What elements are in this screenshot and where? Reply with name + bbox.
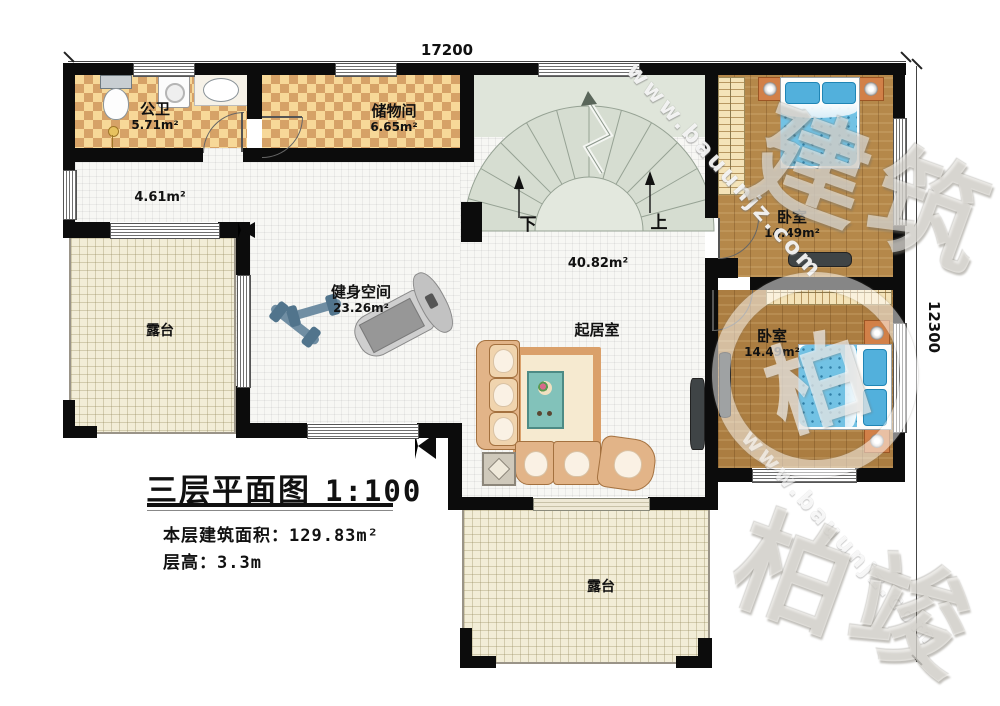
floor-area-row: 本层建筑面积：129.83m² (163, 521, 379, 546)
dimension-line-right (916, 66, 917, 662)
door-leaf (241, 112, 243, 152)
wall (247, 63, 262, 119)
window (893, 323, 907, 433)
floor-plan: 公卫 5.71m² 储物间 6.65m² 4.61m² 40.82m² 健身空间… (0, 0, 1000, 706)
wall (63, 222, 110, 238)
window (133, 63, 195, 77)
room-label-main-hall: 40.82m² (568, 256, 628, 272)
window (335, 63, 397, 77)
room-name: 健身空间 (331, 284, 391, 301)
wall (750, 277, 905, 290)
wall (461, 202, 482, 242)
room-label-terrace-left: 露台 (146, 324, 174, 339)
dimension-tick (911, 58, 922, 69)
toilet-bowl-icon (103, 88, 129, 120)
nightstand-icon (864, 428, 890, 453)
cup-icon (547, 411, 552, 416)
wall (705, 63, 718, 218)
window (307, 424, 419, 439)
door-leaf (262, 116, 302, 118)
bed-pillow (863, 349, 887, 386)
tv-living-icon (690, 378, 705, 450)
flower-decor-icon (538, 381, 552, 395)
sofa-pillow (612, 448, 644, 480)
wall-junction-marker (238, 222, 255, 238)
sofa-pillow (493, 383, 514, 407)
wall (705, 258, 738, 278)
room-label-bedroom-bottom: 卧室 14.49m² (744, 328, 800, 360)
wardrobe-icon (718, 77, 745, 195)
bed-pillow (863, 389, 887, 426)
room-label-fitness: 健身空间 23.26m² (331, 284, 391, 316)
room-name: 卧室 (744, 328, 800, 345)
door-leaf (712, 290, 714, 330)
dimension-top-value: 17200 (421, 41, 473, 59)
dimension-right-value: 12300 (925, 301, 943, 353)
room-area: 5.71m² (131, 118, 178, 133)
room-name: 卧室 (764, 209, 820, 226)
sliding-door (533, 498, 650, 511)
window (893, 118, 907, 226)
wall (63, 148, 203, 162)
room-area: 14.49m² (764, 226, 820, 241)
bed-pillow (822, 82, 856, 104)
watermark-brand: 柏竣 (713, 468, 1000, 706)
bed-icon (798, 344, 892, 430)
window (237, 275, 251, 388)
nightstand-icon (858, 77, 884, 101)
room-name: 储物间 (370, 103, 417, 120)
window (110, 223, 220, 239)
window (752, 469, 857, 483)
room-area: 23.26m² (331, 301, 391, 316)
floor-height-row: 层高：3.3m (163, 548, 262, 573)
cup-icon (537, 411, 542, 416)
tv-bedroom-bottom-icon (719, 352, 731, 418)
dimension-line-top (68, 61, 906, 62)
room-name: 露台 (146, 324, 174, 339)
room-area: 40.82m² (568, 256, 628, 272)
sofa-left (476, 340, 520, 450)
room-label-bathroom: 公卫 5.71m² (131, 101, 178, 133)
wall (448, 497, 533, 510)
sofa-pillow (493, 417, 514, 441)
sofa-pillow (524, 451, 548, 477)
sofa-bottom (553, 441, 601, 485)
side-table (482, 452, 516, 486)
bed-pillow (785, 82, 820, 104)
nightstand-icon (758, 77, 782, 101)
sofa-pillow (493, 349, 514, 373)
sofa-pillow (564, 451, 590, 477)
room-name: 公卫 (131, 101, 178, 118)
dimension-tick (911, 654, 922, 665)
door-leaf (718, 218, 720, 258)
room-area: 14.49m² (744, 345, 800, 360)
spiral-staircase (460, 73, 718, 237)
terrace-corner-block (460, 656, 496, 668)
stairs-down-label: 下 (520, 210, 537, 235)
bed-icon (780, 77, 860, 169)
terrace-corner-block (63, 426, 97, 438)
wall (236, 423, 307, 438)
room-label-bedroom-top: 卧室 14.49m² (764, 209, 820, 241)
side-table-inlay (488, 458, 511, 481)
sink-icon (203, 78, 239, 102)
tv-bedroom-top-icon (788, 252, 852, 267)
window (63, 170, 77, 220)
room-name: 起居室 (574, 322, 619, 339)
floor-height-label: 层高： (163, 553, 217, 573)
room-area: 6.65m² (370, 120, 417, 135)
floor-drain-icon (108, 126, 119, 137)
room-label-hallway: 4.61m² (134, 190, 185, 206)
terrace-corner-block (676, 656, 712, 668)
wall (460, 63, 474, 162)
coffee-table (527, 371, 564, 429)
terrace-bottom-floor (462, 508, 710, 664)
title-underline (147, 503, 393, 507)
toilet-icon (100, 75, 132, 89)
floor-height-value: 3.3m (217, 553, 262, 573)
room-label-terrace-bottom: 露台 (587, 580, 615, 595)
stairs-up-label: 上 (651, 208, 668, 233)
sofa-corner (515, 441, 555, 485)
window (538, 63, 640, 77)
room-area: 4.61m² (134, 190, 185, 206)
wall (705, 468, 752, 482)
title-underline-thin (147, 510, 393, 511)
floor-area-label: 本层建筑面积： (163, 526, 289, 546)
nightstand-icon (864, 320, 890, 345)
room-label-storage: 储物间 6.65m² (370, 103, 417, 135)
floor-area-value: 129.83m² (289, 526, 379, 546)
wall (855, 468, 905, 482)
room-label-living: 起居室 (574, 322, 619, 339)
room-name: 露台 (587, 580, 615, 595)
